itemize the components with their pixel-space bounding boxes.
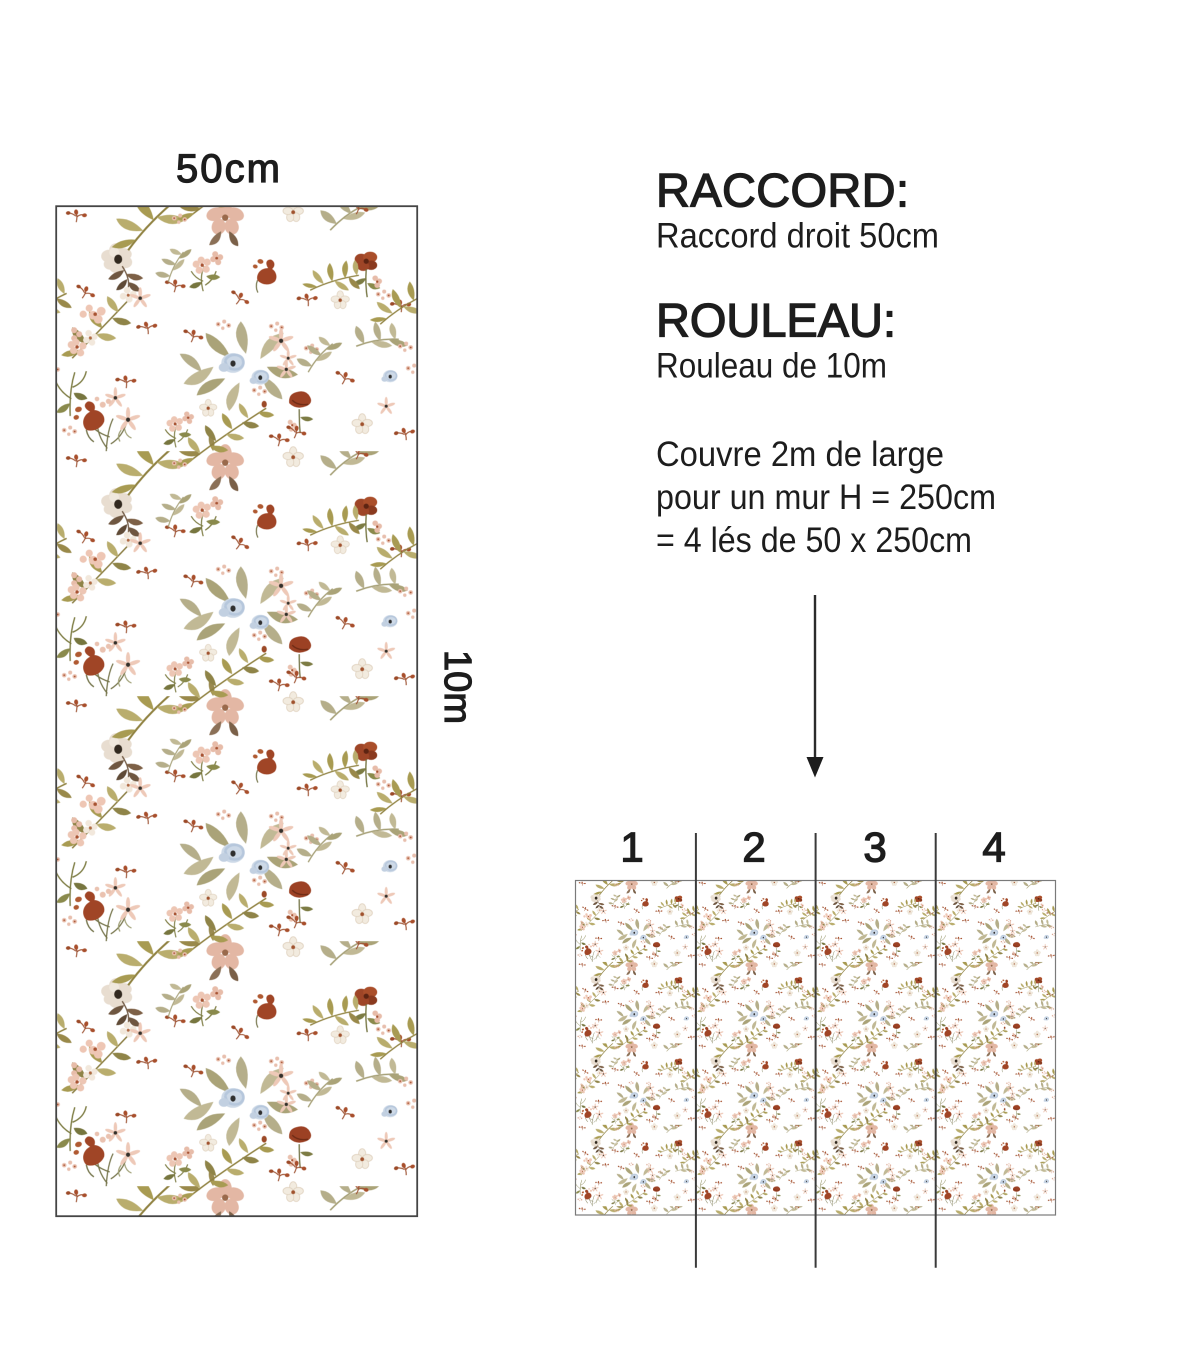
svg-text:1: 1: [620, 824, 643, 871]
svg-text:50cm: 50cm: [176, 147, 280, 191]
svg-text:4: 4: [982, 824, 1005, 871]
svg-text:ROULEAU:: ROULEAU:: [656, 294, 896, 347]
svg-text:= 4 lés de 50 x 250cm: = 4 lés de 50 x 250cm: [656, 521, 972, 560]
svg-text:3: 3: [863, 824, 886, 871]
svg-text:pour un mur H = 250cm: pour un mur H = 250cm: [656, 478, 996, 517]
svg-text:2: 2: [742, 824, 765, 871]
svg-text:Couvre 2m de large: Couvre 2m de large: [656, 435, 944, 474]
svg-text:Rouleau de 10m: Rouleau de 10m: [656, 347, 887, 386]
svg-text:Raccord droit 50cm: Raccord droit 50cm: [656, 217, 939, 256]
svg-text:RACCORD:: RACCORD:: [656, 164, 909, 217]
svg-text:10m: 10m: [436, 650, 478, 724]
